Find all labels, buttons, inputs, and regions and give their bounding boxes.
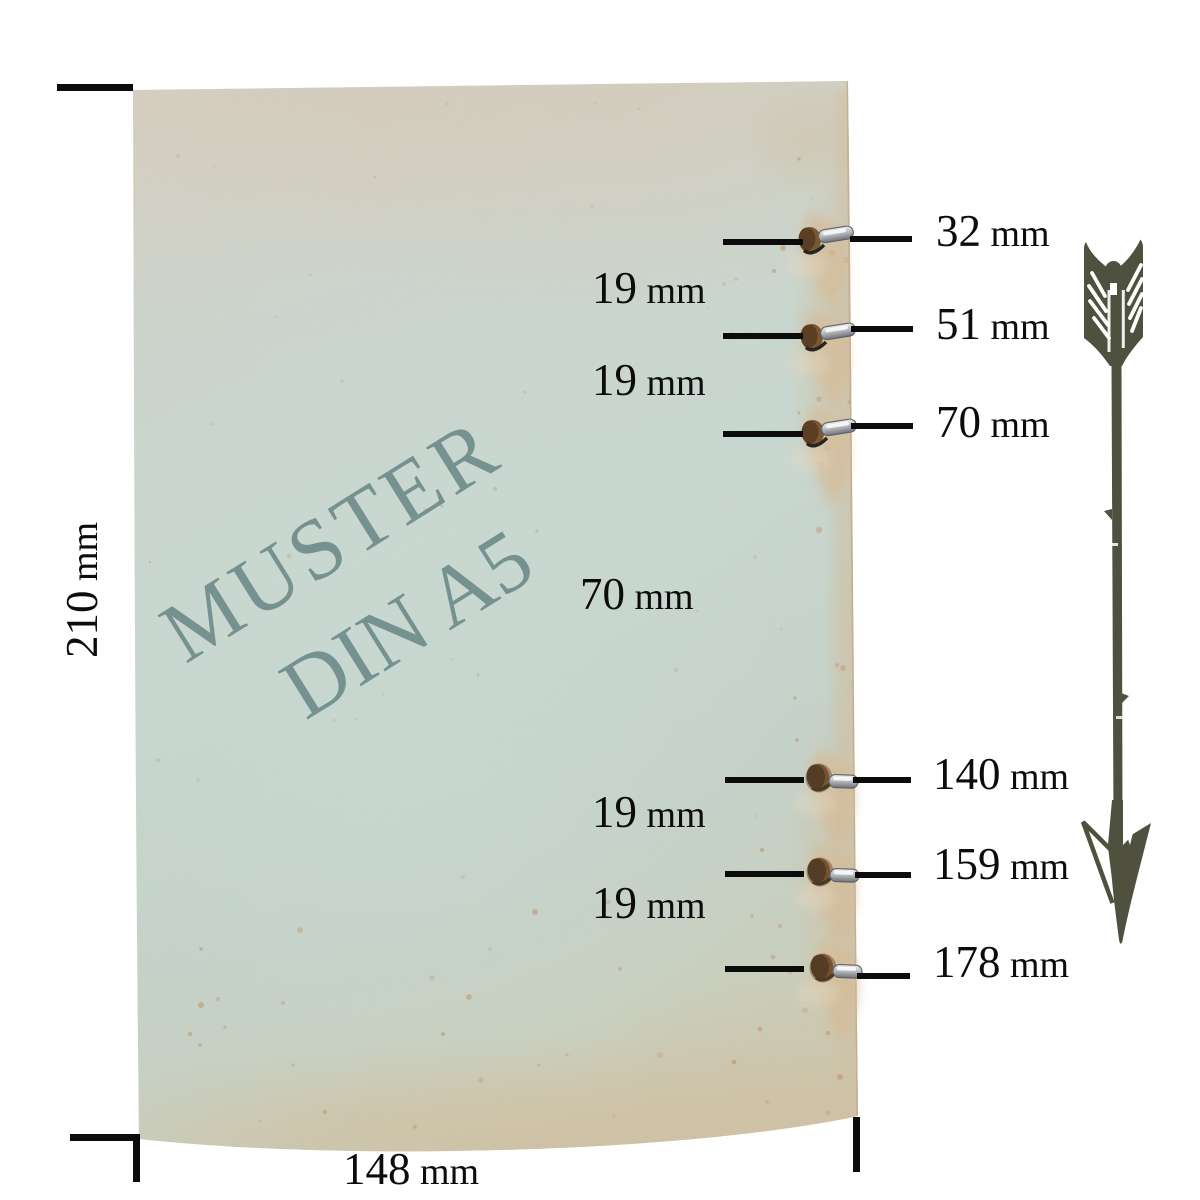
svg-text:19 mm: 19 mm: [592, 787, 706, 837]
svg-text:19 mm: 19 mm: [592, 263, 706, 313]
svg-text:178 mm: 178 mm: [933, 937, 1069, 987]
svg-text:70 mm: 70 mm: [580, 569, 694, 619]
svg-text:51 mm: 51 mm: [936, 299, 1050, 349]
svg-text:140 mm: 140 mm: [933, 749, 1069, 799]
svg-text:159 mm: 159 mm: [933, 839, 1069, 889]
svg-text:210 mm: 210 mm: [57, 522, 107, 658]
svg-text:70 mm: 70 mm: [936, 397, 1050, 447]
svg-text:19 mm: 19 mm: [592, 878, 706, 928]
svg-text:148 mm: 148 mm: [343, 1144, 479, 1194]
svg-text:19 mm: 19 mm: [592, 355, 706, 405]
svg-text:32 mm: 32 mm: [936, 206, 1050, 256]
